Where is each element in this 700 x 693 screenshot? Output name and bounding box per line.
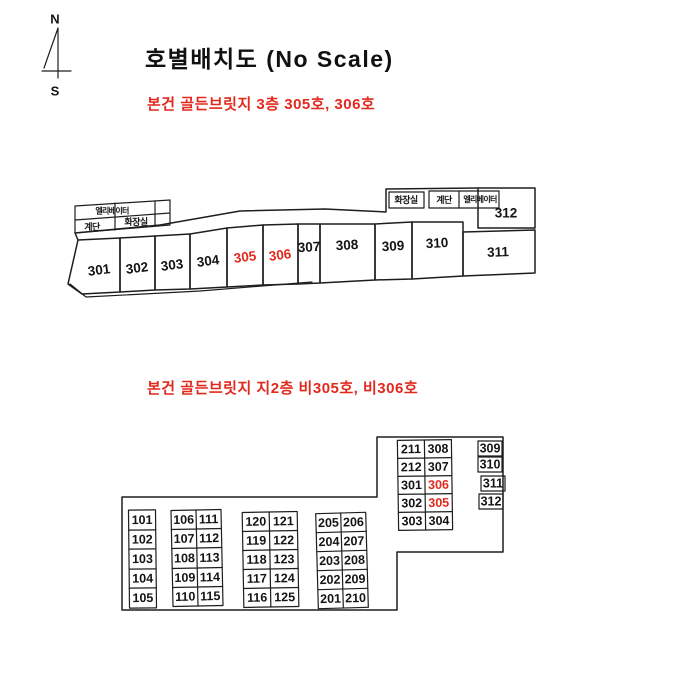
cell-201: 201 <box>320 592 341 607</box>
b2-grid-e: 211 308 212 307 301 306 302 305 303 304 <box>397 440 452 531</box>
cell-204: 204 <box>318 535 339 550</box>
cell-212: 212 <box>401 460 422 474</box>
unit-label-310: 310 <box>425 235 448 251</box>
cell-114: 114 <box>200 570 221 584</box>
unit-label-307: 307 <box>297 239 320 255</box>
cell-211: 211 <box>401 442 421 456</box>
page-title: 호별배치도 (No Scale) <box>145 40 394 74</box>
elevator-label-left: 엘리베이터 <box>95 206 129 216</box>
cell-b312: 312 <box>481 495 502 509</box>
b2-grid-b: 106 111 107 112 108 113 109 114 110 115 <box>171 509 223 606</box>
cell-205: 205 <box>318 516 339 531</box>
compass-needle <box>42 28 71 78</box>
cell-120: 120 <box>245 515 266 529</box>
floorb2-plan: 101 102 103 104 105 106 111 107 112 108 … <box>110 430 510 615</box>
unit-label-308: 308 <box>335 237 359 253</box>
cell-b301: 301 <box>401 478 422 492</box>
unit-label-303: 303 <box>160 256 185 274</box>
b2-grid-f: 309 310 311 312 <box>478 441 505 509</box>
floor3-subtitle: 본건 골든브릿지 3층 305호, 306호 <box>147 93 375 114</box>
cell-b310: 310 <box>480 458 501 472</box>
unit-label-301: 301 <box>87 261 112 279</box>
cell-b306: 306 <box>428 478 449 492</box>
unit-label-312: 312 <box>495 206 518 221</box>
compass-north-label: N <box>50 12 59 27</box>
stairs-label-left: 계단 <box>84 221 101 232</box>
cell-123: 123 <box>273 552 294 566</box>
cell-b302: 302 <box>401 496 422 510</box>
cell-112: 112 <box>199 531 220 545</box>
cell-118: 118 <box>246 553 266 567</box>
b2-grid-a: 101 102 103 104 105 <box>128 510 156 608</box>
cell-207: 207 <box>343 534 364 549</box>
elevator-label-right: 엘리베이터 <box>463 194 497 204</box>
cell-b311: 311 <box>483 477 503 491</box>
b2-grid-c: 120 121 119 122 118 123 117 124 116 125 <box>242 512 299 608</box>
page-root: N S 호별배치도 (No Scale) 본건 골든브릿지 3층 305호, 3… <box>0 0 700 693</box>
cell-111: 111 <box>199 512 219 526</box>
unit-cell-308 <box>320 224 375 283</box>
b2-grid-d: 205 206 204 207 203 208 202 209 201 210 <box>316 512 369 608</box>
cell-125: 125 <box>274 590 295 604</box>
cell-b304: 304 <box>428 514 449 528</box>
cell-108: 108 <box>174 551 195 565</box>
cell-b309: 309 <box>480 442 501 456</box>
cell-105: 105 <box>132 591 153 605</box>
stairs-label-right: 계단 <box>436 194 453 205</box>
cell-113: 113 <box>199 551 220 565</box>
cell-117: 117 <box>247 572 267 586</box>
facility-block-right: 화장실 계단 엘리베이터 <box>389 191 499 208</box>
floor3-plan: 엘리베이터 계단 화장실 화장실 계단 엘리베이터 301 302 303 30… <box>60 180 545 305</box>
cell-109: 109 <box>174 571 195 585</box>
cell-b303: 303 <box>401 514 422 528</box>
cell-107: 107 <box>174 532 195 546</box>
cell-202: 202 <box>319 573 340 588</box>
cell-b307: 307 <box>428 460 449 474</box>
cell-122: 122 <box>273 533 294 547</box>
cell-b305: 305 <box>428 496 449 510</box>
cell-110: 110 <box>175 590 196 604</box>
cell-106: 106 <box>173 513 194 527</box>
cell-206: 206 <box>343 515 364 530</box>
cell-210: 210 <box>345 591 366 606</box>
unit-label-302: 302 <box>125 259 149 277</box>
unit-label-305: 305 <box>233 248 258 266</box>
unit-label-309: 309 <box>381 238 404 254</box>
cell-115: 115 <box>200 589 221 603</box>
restroom-label-left: 화장실 <box>124 216 148 227</box>
compass: N S <box>20 5 95 110</box>
cell-119: 119 <box>246 534 266 548</box>
cell-121: 121 <box>273 514 294 528</box>
cell-209: 209 <box>344 572 365 587</box>
cell-101: 101 <box>132 513 153 527</box>
cell-203: 203 <box>319 554 340 569</box>
restroom-label-right: 화장실 <box>394 194 418 205</box>
unit-label-311: 311 <box>487 244 510 260</box>
cell-102: 102 <box>132 532 153 546</box>
cell-208: 208 <box>344 553 365 568</box>
floorb2-subtitle: 본건 골든브릿지 지2층 비305호, 비306호 <box>147 377 418 398</box>
cell-116: 116 <box>247 591 267 605</box>
unit-cell-310 <box>412 222 463 279</box>
unit-label-306: 306 <box>268 246 293 264</box>
compass-south-label: S <box>51 84 60 99</box>
cell-124: 124 <box>274 571 295 585</box>
cell-104: 104 <box>132 571 153 585</box>
unit-label-304: 304 <box>196 252 221 270</box>
cell-b308: 308 <box>427 442 448 456</box>
cell-103: 103 <box>132 552 153 566</box>
